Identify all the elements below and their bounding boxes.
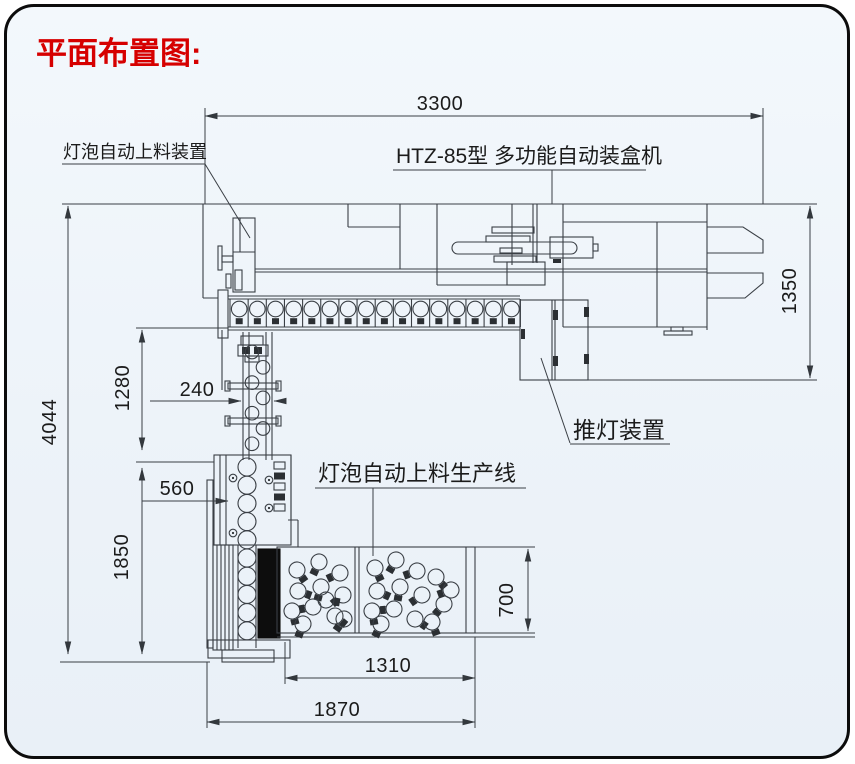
tray-scattered-bulbs: [282, 549, 461, 640]
dim-conveyor-width: 240: [180, 379, 215, 401]
cartoning-machine-outline: [62, 204, 763, 335]
page-title: 平面布置图:: [36, 36, 201, 71]
gripper-mechanism: [452, 204, 598, 285]
dim-lower-section: 1850: [111, 534, 133, 581]
label-cartoning-machine: HTZ-85型 多功能自动装盒机: [396, 145, 662, 168]
conveyor-bulbs: [230, 299, 520, 327]
dim-conveyor-section: 1280: [112, 365, 134, 412]
dim-tray-width: 1310: [365, 655, 412, 677]
dim-feeder-offset: 560: [160, 478, 195, 500]
label-leaders: [62, 164, 670, 556]
dim-base-width: 1870: [314, 699, 361, 721]
dim-overall-depth: 4044: [39, 399, 61, 446]
dim-overall-width: 3300: [417, 93, 464, 115]
bulb-conveyor: [218, 290, 520, 390]
feeder-device: [218, 218, 255, 292]
label-lamp-pusher: 推灯装置: [573, 417, 665, 443]
lamp-pusher-box: [520, 300, 589, 380]
floor-plan-drawing: 平面布置图: 灯泡自动上料装置 HTZ-85型 多功能自动装盒机 推灯装置 灯泡…: [0, 0, 855, 764]
dimension-lines: [60, 108, 817, 728]
staging-assembly: [207, 455, 298, 662]
label-feeder-device: 灯泡自动上料装置: [63, 142, 207, 162]
label-feeding-line: 灯泡自动上料生产线: [318, 461, 516, 486]
rack-ladder: [274, 462, 285, 511]
dim-machine-depth: 1350: [779, 268, 801, 315]
floor-plan-page: 平面布置图: 灯泡自动上料装置 HTZ-85型 多功能自动装盒机 推灯装置 灯泡…: [0, 0, 855, 764]
dim-tray-depth: 700: [496, 583, 518, 618]
